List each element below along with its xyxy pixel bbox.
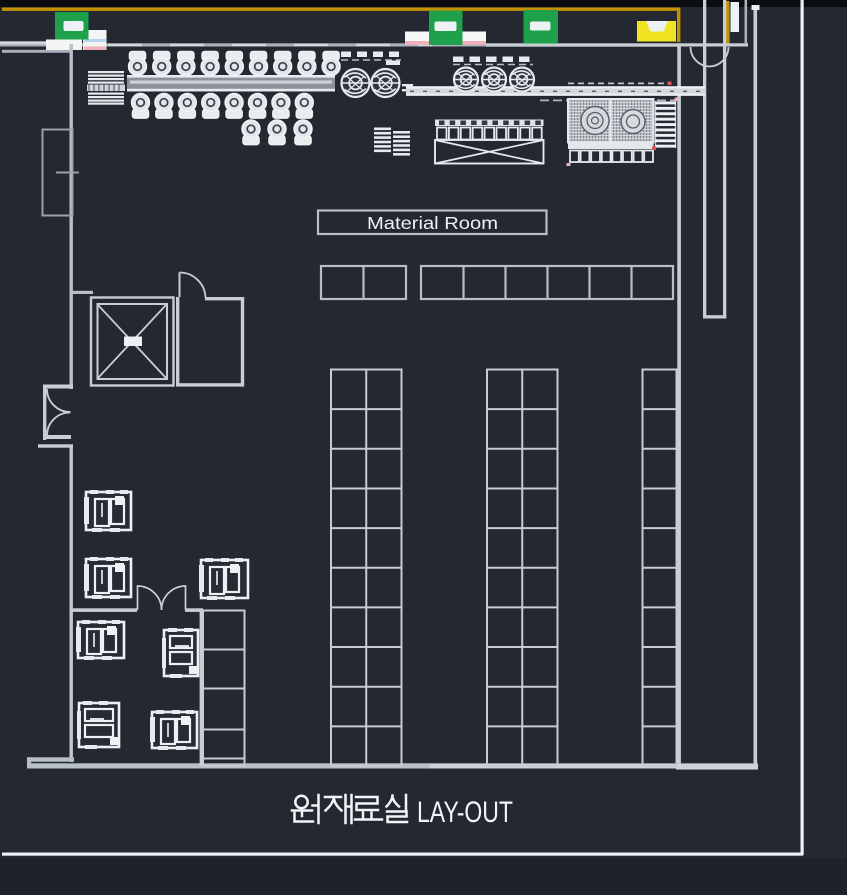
svg-text:LAY-OUT: LAY-OUT — [417, 796, 513, 829]
svg-text:Material Room: Material Room — [367, 213, 498, 233]
